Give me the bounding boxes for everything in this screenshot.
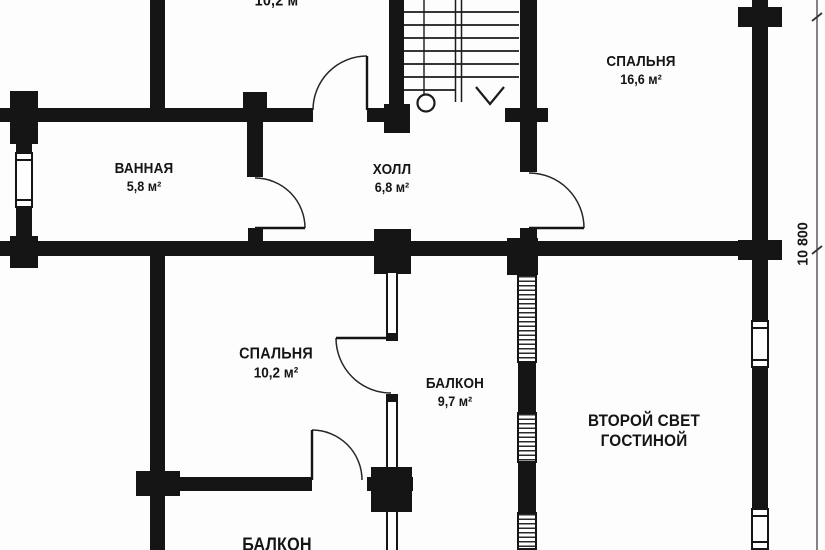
room-area: 9,7 м² — [426, 393, 484, 410]
room-label-bedroom1: СПАЛЬНЯ 16,6 м² — [606, 53, 675, 87]
room-area: 10,2 м² — [239, 365, 313, 383]
door-arc-balcony1 — [336, 338, 391, 393]
room-label-top-room: 10,2 м² — [255, 0, 304, 11]
room-label-hall: ХОЛЛ 6,8 м² — [373, 161, 411, 195]
door-arc-bedroom1 — [529, 173, 584, 228]
room-label-bedroom2: СПАЛЬНЯ 10,2 м² — [239, 346, 313, 383]
dimension-label: 10 800 — [795, 222, 812, 266]
room-name: ХОЛЛ — [373, 161, 411, 179]
room-label-second-light: ВТОРОЙ СВЕТ ГОСТИНОЙ — [588, 411, 700, 451]
room-label-bathroom: ВАННАЯ 5,8 м² — [115, 160, 174, 194]
newel-circle — [418, 95, 435, 112]
room-name: БАЛКОН — [426, 375, 484, 393]
room-label-balcony2: БАЛКОН — [242, 534, 312, 550]
room-name-line1: ВТОРОЙ СВЕТ — [588, 411, 700, 431]
room-area: 5,8 м² — [115, 178, 174, 195]
room-name: БАЛКОН — [242, 534, 312, 550]
room-name-line2: ГОСТИНОЙ — [588, 431, 700, 451]
door-arc-top-room — [313, 56, 367, 110]
room-label-balcony1: БАЛКОН 9,7 м² — [426, 375, 484, 409]
dimension-line — [812, 0, 822, 550]
stair-down-arrow-icon — [476, 87, 504, 104]
room-area: 10,2 м² — [255, 0, 304, 11]
stairs — [404, 0, 519, 112]
plan-linework — [0, 0, 825, 550]
door-arc-balcony2 — [312, 430, 362, 480]
floor-plan: 10,2 м² СПАЛЬНЯ 16,6 м² ВАННАЯ 5,8 м² ХО… — [0, 0, 825, 550]
room-area: 16,6 м² — [606, 71, 675, 88]
room-area: 6,8 м² — [373, 179, 411, 196]
room-name: СПАЛЬНЯ — [239, 346, 313, 365]
room-name: СПАЛЬНЯ — [606, 53, 675, 71]
room-name: ВАННАЯ — [115, 160, 174, 178]
door-arc-bathroom — [255, 178, 305, 228]
